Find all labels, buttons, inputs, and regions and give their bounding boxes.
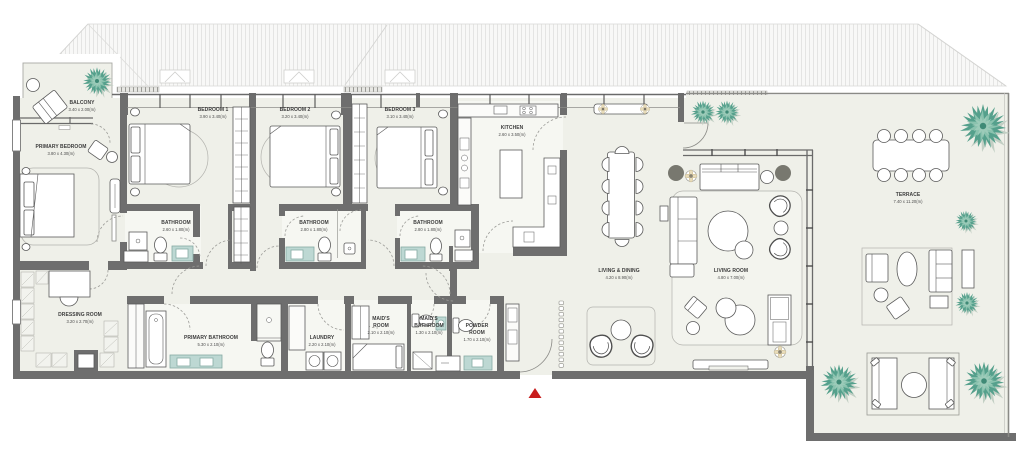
svg-text:TERRACE: TERRACE	[896, 192, 921, 198]
svg-text:KITCHEN: KITCHEN	[501, 125, 524, 131]
svg-text:2.60 x 1.80(m): 2.60 x 1.80(m)	[163, 227, 191, 232]
svg-text:3.20 x 3.40(m): 3.20 x 3.40(m)	[282, 114, 310, 119]
svg-text:BATHROOM: BATHROOM	[414, 323, 443, 329]
svg-text:BALCONY: BALCONY	[69, 100, 95, 106]
svg-text:POWDER: POWDER	[466, 323, 489, 329]
svg-text:LIVING ROOM: LIVING ROOM	[714, 268, 748, 274]
svg-text:3.40 x 2.00(m): 3.40 x 2.00(m)	[69, 107, 97, 112]
svg-text:BEDROOM 1: BEDROOM 1	[198, 107, 229, 113]
svg-text:5.30 x 2.10(m): 5.30 x 2.10(m)	[198, 342, 226, 347]
svg-text:2.80 x 1.80(m): 2.80 x 1.80(m)	[415, 227, 443, 232]
svg-text:7.40 x 11.20(m): 7.40 x 11.20(m)	[893, 199, 923, 204]
svg-text:3.80 x 4.30(m): 3.80 x 4.30(m)	[48, 151, 76, 156]
svg-text:LIVING & DINING: LIVING & DINING	[598, 268, 639, 274]
svg-text:ROOM: ROOM	[469, 330, 485, 336]
svg-text:2.80 x 1.80(m): 2.80 x 1.80(m)	[301, 227, 329, 232]
svg-text:MAID'S: MAID'S	[420, 316, 438, 322]
svg-text:MAID'S: MAID'S	[372, 316, 390, 322]
svg-text:BATHROOM: BATHROOM	[161, 220, 190, 226]
svg-text:BEDROOM 3: BEDROOM 3	[385, 107, 416, 113]
svg-text:DRESSING ROOM: DRESSING ROOM	[58, 312, 102, 318]
svg-text:LAUNDRY: LAUNDRY	[310, 335, 335, 341]
svg-text:3.90 x 3.40(m): 3.90 x 3.40(m)	[200, 114, 228, 119]
svg-text:2.60 x 3.50(m): 2.60 x 3.50(m)	[499, 132, 527, 137]
svg-text:PRIMARY BATHROOM: PRIMARY BATHROOM	[184, 335, 238, 341]
svg-text:ROOM: ROOM	[373, 323, 389, 329]
svg-text:4.80 x 7.00(m): 4.80 x 7.00(m)	[718, 275, 746, 280]
svg-text:BATHROOM: BATHROOM	[299, 220, 328, 226]
svg-text:PRIMARY BEDROOM: PRIMARY BEDROOM	[35, 144, 86, 150]
svg-text:4.20 x 8.90(m): 4.20 x 8.90(m)	[606, 275, 634, 280]
svg-text:3.10 x 3.40(m): 3.10 x 3.40(m)	[387, 114, 415, 119]
svg-text:2.10 x 2.10(m): 2.10 x 2.10(m)	[368, 330, 396, 335]
svg-text:BEDROOM 2: BEDROOM 2	[280, 107, 311, 113]
svg-text:BATHROOM: BATHROOM	[413, 220, 442, 226]
svg-text:2.20 x 2.10(m): 2.20 x 2.10(m)	[309, 342, 337, 347]
svg-text:1.70 x 2.10(m): 1.70 x 2.10(m)	[464, 337, 492, 342]
svg-text:1.30 x 2.10(m): 1.30 x 2.10(m)	[416, 330, 444, 335]
svg-text:3.20 x 2.70(m): 3.20 x 2.70(m)	[67, 319, 95, 324]
